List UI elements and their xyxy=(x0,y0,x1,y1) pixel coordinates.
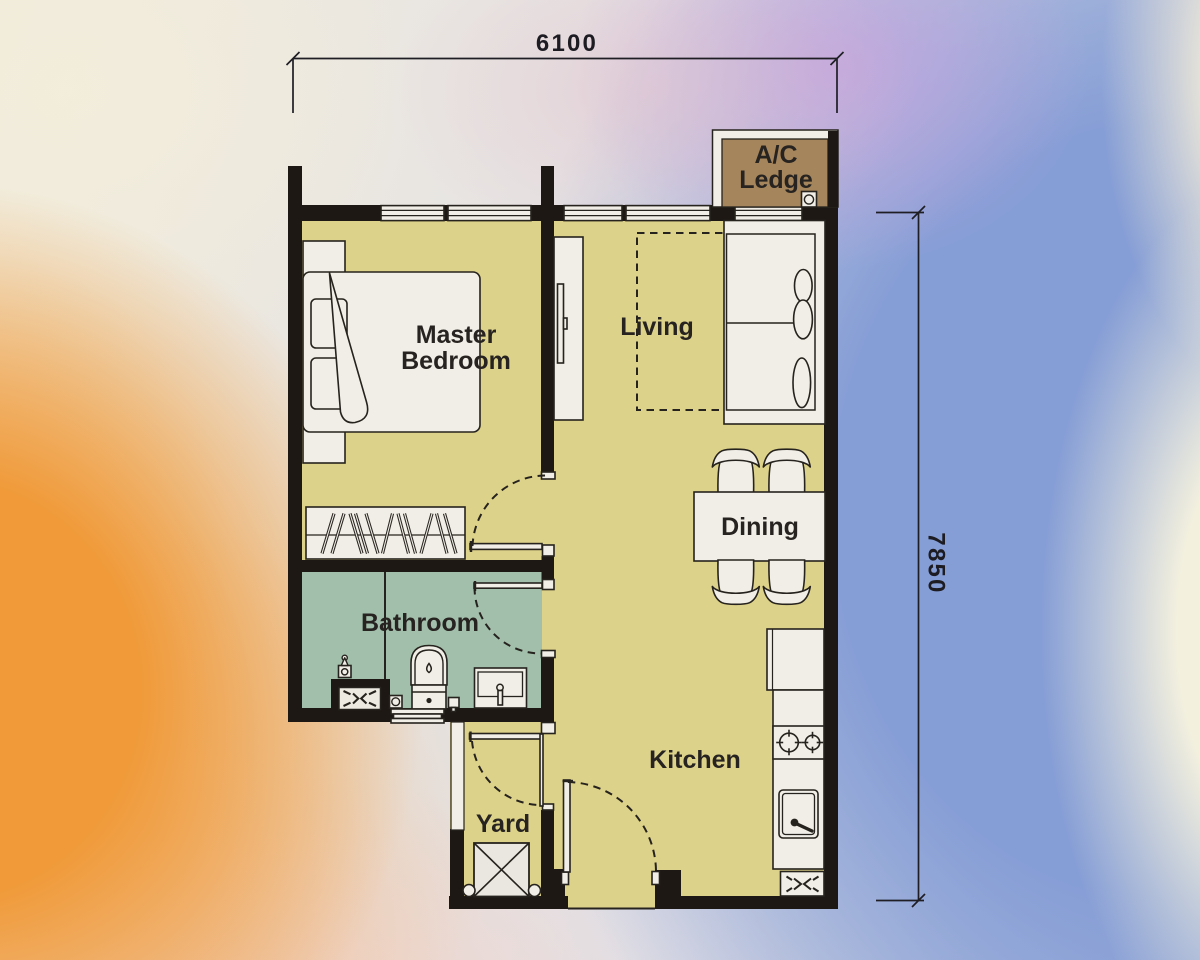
svg-text:Master: Master xyxy=(416,321,497,349)
svg-text:6100: 6100 xyxy=(536,30,598,57)
svg-text:Bathroom: Bathroom xyxy=(361,609,479,637)
svg-text:Ledge: Ledge xyxy=(739,166,813,194)
svg-text:7850: 7850 xyxy=(923,532,950,594)
svg-text:Living: Living xyxy=(620,313,694,341)
svg-text:Bedroom: Bedroom xyxy=(401,347,511,375)
svg-text:Yard: Yard xyxy=(476,810,530,838)
svg-text:Kitchen: Kitchen xyxy=(649,746,741,774)
svg-text:Dining: Dining xyxy=(721,513,799,541)
svg-text:A/C: A/C xyxy=(754,141,797,169)
